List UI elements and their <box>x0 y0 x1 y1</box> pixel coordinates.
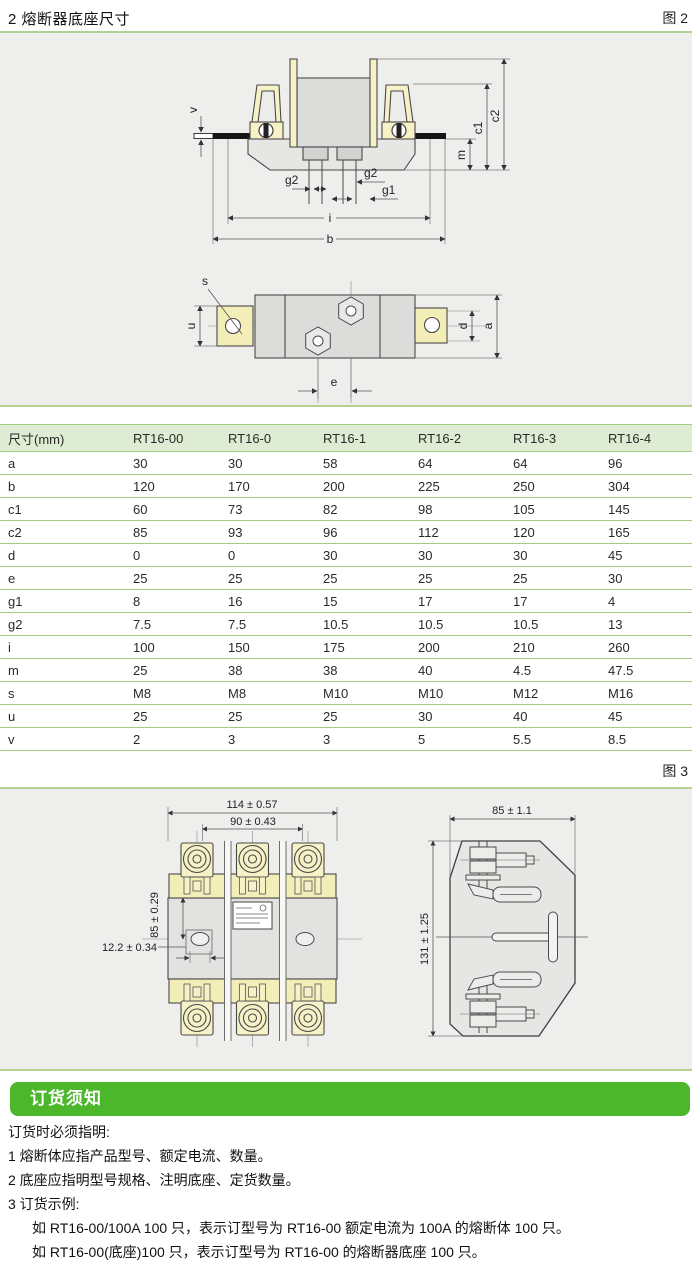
dimension-table-body: a303058646496b120170200225250304c1607382… <box>0 452 692 751</box>
ordering-example-1: 如 RT16-00/100A 100 只，表示订型号为 RT16-00 额定电流… <box>8 1216 692 1240</box>
three-pole-side-view-drawing: 85 ± 1.1 131 ± 1.25 <box>400 791 700 1067</box>
dimension-symbol: m <box>0 659 125 682</box>
dimension-value: 16 <box>220 590 315 613</box>
dimension-value: 30 <box>505 544 600 567</box>
table-row: c160738298105145 <box>0 498 692 521</box>
dimension-symbol: v <box>0 728 125 751</box>
dimension-value: 30 <box>410 705 505 728</box>
dimension-value: M8 <box>125 682 220 705</box>
dimension-value: 105 <box>505 498 600 521</box>
dimension-value: 30 <box>315 544 410 567</box>
dimension-value: 25 <box>505 567 600 590</box>
dimension-value: 40 <box>410 659 505 682</box>
dimension-value: M10 <box>410 682 505 705</box>
dimension-symbol: u <box>0 705 125 728</box>
dimension-symbol: c1 <box>0 498 125 521</box>
dim-label-12-2: 12.2 ± 0.34 <box>102 942 157 954</box>
dim-label-g2-right: g2 <box>364 166 378 180</box>
column-header-model: RT16-4 <box>600 425 692 452</box>
dimension-value: 7.5 <box>125 613 220 636</box>
dimension-value: 260 <box>600 636 692 659</box>
dimension-value: 60 <box>125 498 220 521</box>
ordering-notice-banner: 订货须知 <box>10 1082 690 1116</box>
dimension-value: 15 <box>315 590 410 613</box>
table-row: c2859396112120165 <box>0 521 692 544</box>
dimension-value: 93 <box>220 521 315 544</box>
dimension-value: 120 <box>505 521 600 544</box>
dimension-value: 250 <box>505 475 600 498</box>
dimension-value: 30 <box>410 544 505 567</box>
dim-label-90: 90 ± 0.43 <box>230 816 276 828</box>
dimension-value: 150 <box>220 636 315 659</box>
dim-label-85-side: 85 ± 1.1 <box>492 805 532 817</box>
dimension-value: 3 <box>220 728 315 751</box>
dimension-value: 225 <box>410 475 505 498</box>
figure3-label: 图 3 <box>662 761 688 781</box>
column-header-model: RT16-00 <box>125 425 220 452</box>
ordering-item-1: 1 熔断体应指产品型号、额定电流、数量。 <box>8 1144 692 1168</box>
dimension-value: 10.5 <box>315 613 410 636</box>
dimension-value: 100 <box>125 636 220 659</box>
dimension-value: M16 <box>600 682 692 705</box>
ordering-item-3: 3 订货示例: <box>8 1192 692 1216</box>
table-row: sM8M8M10M10M12M16 <box>0 682 692 705</box>
table-row: g27.57.510.510.510.513 <box>0 613 692 636</box>
dim-label-d: d <box>456 323 470 330</box>
dimension-value: 98 <box>410 498 505 521</box>
dimension-value: 5.5 <box>505 728 600 751</box>
dimension-symbol: g1 <box>0 590 125 613</box>
table-row: v23355.58.5 <box>0 728 692 751</box>
figure2-panel: v g2 g2 g1 i b m c1 c2 <box>0 31 692 407</box>
dim-label-c2: c2 <box>488 109 502 122</box>
dimension-symbol: c2 <box>0 521 125 544</box>
dimension-value: 38 <box>315 659 410 682</box>
right-fuse-clip <box>382 85 415 139</box>
dim-label-a: a <box>481 322 495 329</box>
dim-label-114: 114 ± 0.57 <box>226 799 277 811</box>
dimension-value: 120 <box>125 475 220 498</box>
table-row: d0030303045 <box>0 544 692 567</box>
dimension-value: 3 <box>315 728 410 751</box>
dimension-value: 25 <box>315 567 410 590</box>
page-title: 2 熔断器底座尺寸 <box>8 8 130 29</box>
dimension-value: 10.5 <box>410 613 505 636</box>
table-row: i100150175200210260 <box>0 636 692 659</box>
dimension-value: 10.5 <box>505 613 600 636</box>
dim-label-b: b <box>327 232 334 246</box>
dim-label-e: e <box>331 375 338 389</box>
dimension-value: 25 <box>220 567 315 590</box>
dimension-value: 112 <box>410 521 505 544</box>
dimension-value: M12 <box>505 682 600 705</box>
column-header-model: RT16-0 <box>220 425 315 452</box>
dim-label-s: s <box>202 274 208 288</box>
dimension-value: 38 <box>220 659 315 682</box>
ordering-example-2: 如 RT16-00(底座)100 只，表示订型号为 RT16-00 的熔断器底座… <box>8 1240 692 1264</box>
dimension-value: 30 <box>600 567 692 590</box>
rating-label-plate <box>233 902 272 929</box>
dimension-value: 304 <box>600 475 692 498</box>
dimension-value: 175 <box>315 636 410 659</box>
dim-label-u: u <box>184 323 198 330</box>
base-plan-body <box>217 295 447 358</box>
dimension-value: 25 <box>410 567 505 590</box>
dim-label-m: m <box>454 150 468 160</box>
dimension-value: 5 <box>410 728 505 751</box>
dimension-value: 25 <box>315 705 410 728</box>
dimension-value: 4 <box>600 590 692 613</box>
column-header-model: RT16-1 <box>315 425 410 452</box>
column-header-model: RT16-3 <box>505 425 600 452</box>
dimension-value: 200 <box>410 636 505 659</box>
dimension-value: 7.5 <box>220 613 315 636</box>
dimension-value: 45 <box>600 544 692 567</box>
dimension-value: 96 <box>600 452 692 475</box>
dimension-symbol: a <box>0 452 125 475</box>
dimension-value: 82 <box>315 498 410 521</box>
dimension-value: 45 <box>600 705 692 728</box>
dimension-value: 0 <box>125 544 220 567</box>
dimension-value: 17 <box>505 590 600 613</box>
dimension-value: M8 <box>220 682 315 705</box>
dimension-value: 17 <box>410 590 505 613</box>
ordering-intro: 订货时必须指明: <box>8 1120 692 1144</box>
column-header-model: RT16-2 <box>410 425 505 452</box>
dimension-value: 8.5 <box>600 728 692 751</box>
ordering-item-2: 2 底座应指明型号规格、注明底座、定货数量。 <box>8 1168 692 1192</box>
dimension-table-head-row: 尺寸(mm)RT16-00RT16-0RT16-1RT16-2RT16-3RT1… <box>0 425 692 452</box>
dim-label-v: v <box>186 107 200 113</box>
dimension-value: 64 <box>505 452 600 475</box>
dimension-value: 30 <box>220 452 315 475</box>
dim-label-g1: g1 <box>382 183 396 197</box>
dimension-value: 58 <box>315 452 410 475</box>
dimension-table: 尺寸(mm)RT16-00RT16-0RT16-1RT16-2RT16-3RT1… <box>0 424 692 751</box>
table-row: u252525304045 <box>0 705 692 728</box>
dimension-value: 40 <box>505 705 600 728</box>
dimension-value: 85 <box>125 521 220 544</box>
dimension-value: 145 <box>600 498 692 521</box>
dimension-value: 210 <box>505 636 600 659</box>
dimension-value: 13 <box>600 613 692 636</box>
dimension-value: 30 <box>125 452 220 475</box>
table-row: m253838404.547.5 <box>0 659 692 682</box>
dim-label-g2-left: g2 <box>285 173 299 187</box>
dimension-value: 25 <box>125 705 220 728</box>
dimension-value: 25 <box>125 567 220 590</box>
dim-label-131: 131 ± 1.25 <box>419 913 431 965</box>
dimension-symbol: s <box>0 682 125 705</box>
dimension-value: 47.5 <box>600 659 692 682</box>
dimension-value: 4.5 <box>505 659 600 682</box>
ordering-notes: 订货时必须指明: 1 熔断体应指产品型号、额定电流、数量。 2 底座应指明型号规… <box>8 1120 692 1264</box>
dimension-value: 200 <box>315 475 410 498</box>
dimension-value: 73 <box>220 498 315 521</box>
figure3-panel: 114 ± 0.57 90 ± 0.43 85 ± 0.29 12.2 ± 0.… <box>0 787 692 1071</box>
fuse-base-front-view-drawing: v g2 g2 g1 i b m c1 c2 <box>180 36 520 266</box>
dimension-symbol: g2 <box>0 613 125 636</box>
three-pole-front-view-drawing: 114 ± 0.57 90 ± 0.43 85 ± 0.29 12.2 ± 0.… <box>100 791 400 1067</box>
left-fuse-clip <box>250 85 283 139</box>
dim-label-85: 85 ± 0.29 <box>149 892 161 938</box>
dimension-symbol: b <box>0 475 125 498</box>
figure2-label: 图 2 <box>662 8 688 28</box>
table-row: a303058646496 <box>0 452 692 475</box>
column-header-dimension: 尺寸(mm) <box>0 425 125 452</box>
fuse-base-top-view-drawing: s u e d a <box>180 263 520 413</box>
dimension-value: 2 <box>125 728 220 751</box>
dimension-value: 64 <box>410 452 505 475</box>
table-row: b120170200225250304 <box>0 475 692 498</box>
dim-label-i: i <box>329 211 332 225</box>
dimension-value: 165 <box>600 521 692 544</box>
dimension-symbol: e <box>0 567 125 590</box>
dimension-value: 25 <box>125 659 220 682</box>
dimension-value: 170 <box>220 475 315 498</box>
dimension-value: 0 <box>220 544 315 567</box>
table-row: e252525252530 <box>0 567 692 590</box>
dimension-symbol: d <box>0 544 125 567</box>
dimension-value: M10 <box>315 682 410 705</box>
dim-label-c1: c1 <box>471 121 485 134</box>
dimension-value: 25 <box>220 705 315 728</box>
dimension-value: 8 <box>125 590 220 613</box>
table-row: g18161517174 <box>0 590 692 613</box>
dimension-value: 96 <box>315 521 410 544</box>
dimension-symbol: i <box>0 636 125 659</box>
